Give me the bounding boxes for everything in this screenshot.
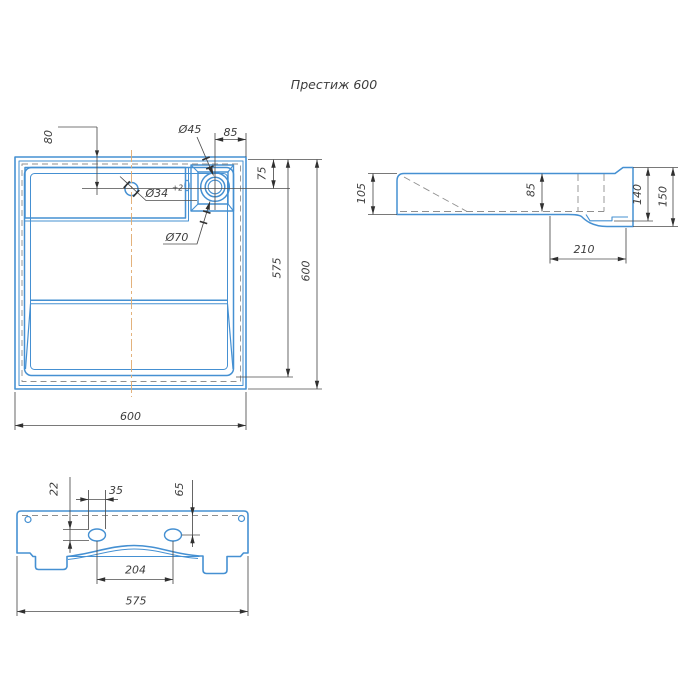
label-204: 204 <box>125 564 146 577</box>
side-view-hidden-lines <box>400 174 604 212</box>
label-210: 210 <box>574 243 595 256</box>
label-22: 22 <box>48 482 61 496</box>
label-75: 75 <box>256 167 269 181</box>
side-view-outline <box>397 168 633 227</box>
label-150: 150 <box>657 186 670 207</box>
fixing-slot-left <box>89 529 106 541</box>
top-view: 80 Ø45 85 75 Ø34 +2 Ø70 575 600 600 <box>15 123 322 430</box>
label-600-right: 600 <box>300 261 313 282</box>
arrow-80-top <box>95 150 99 157</box>
label-105: 105 <box>355 183 368 204</box>
technical-drawing: Престиж 600 <box>0 0 700 700</box>
label-85: 85 <box>525 183 538 197</box>
label-65: 65 <box>173 483 186 497</box>
label-dia45: Ø45 <box>178 123 202 136</box>
mounting-hole-right <box>239 516 245 522</box>
drain-boss <box>586 215 628 221</box>
label-dia34-tolerance: +2 <box>172 184 183 193</box>
label-600-bottom: 600 <box>120 410 141 423</box>
drawing-title: Престиж 600 <box>291 77 377 92</box>
side-view: 105 85 140 150 210 <box>355 168 678 264</box>
label-140: 140 <box>631 184 644 205</box>
extension-lines <box>368 168 678 264</box>
top-view-outline <box>15 157 246 389</box>
apron-curve-inner <box>68 549 198 560</box>
basin-wall-outer <box>25 168 234 376</box>
side-profile <box>397 168 633 227</box>
hidden-basin-profile <box>400 174 604 212</box>
fixing-slot-right <box>165 529 182 541</box>
label-575-right: 575 <box>271 258 284 279</box>
arrow-80-bottom <box>95 182 99 189</box>
label-80: 80 <box>42 130 55 144</box>
label-35: 35 <box>109 484 123 497</box>
mounting-hole-left <box>25 517 31 523</box>
label-dia34: Ø34 <box>145 187 169 200</box>
label-575: 575 <box>126 595 147 608</box>
side-view-dimensions <box>368 168 678 264</box>
sink-outer-edge <box>15 157 246 389</box>
drawing-canvas: Престиж 600 <box>0 0 700 700</box>
basin-floor-slopes <box>26 304 234 369</box>
front-view: 22 35 65 204 575 <box>17 477 248 616</box>
label-dia70: Ø70 <box>165 231 189 244</box>
label-85: 85 <box>224 126 238 139</box>
